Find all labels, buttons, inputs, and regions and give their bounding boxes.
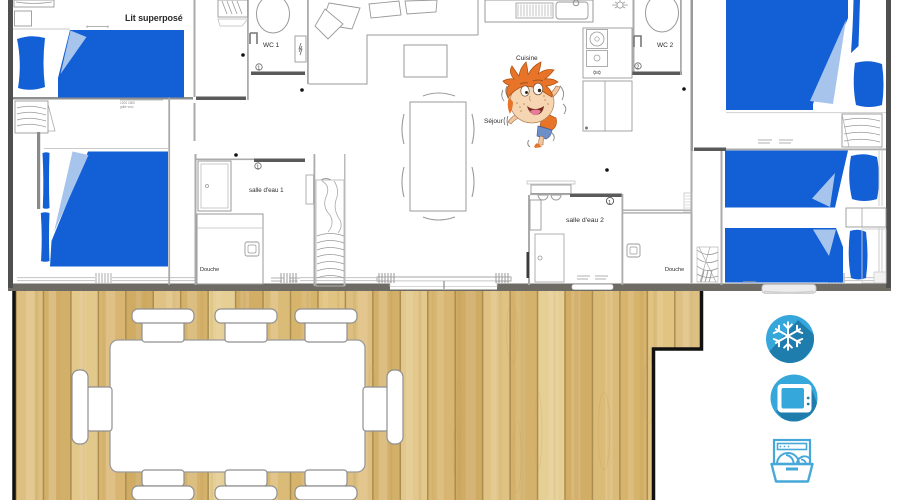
- svg-text:salle d'eau 1: salle d'eau 1: [249, 187, 284, 194]
- svg-text:1: 1: [256, 165, 259, 171]
- svg-text:WC 1: WC 1: [263, 42, 280, 49]
- svg-text:WC 2: WC 2: [657, 42, 674, 49]
- svg-text:Douche: Douche: [665, 267, 684, 273]
- svg-text:Lit superposé: Lit superposé: [125, 13, 183, 23]
- svg-text:2: 2: [636, 65, 639, 71]
- svg-text:1: 1: [257, 66, 260, 72]
- svg-text:grille vmc: grille vmc: [120, 105, 134, 109]
- svg-text:Cuisine: Cuisine: [516, 55, 538, 62]
- svg-text:Douche: Douche: [200, 267, 219, 273]
- svg-text:salle d'eau 2: salle d'eau 2: [566, 217, 604, 224]
- svg-text:1: 1: [608, 200, 611, 206]
- svg-text:Séjour: Séjour: [484, 118, 504, 125]
